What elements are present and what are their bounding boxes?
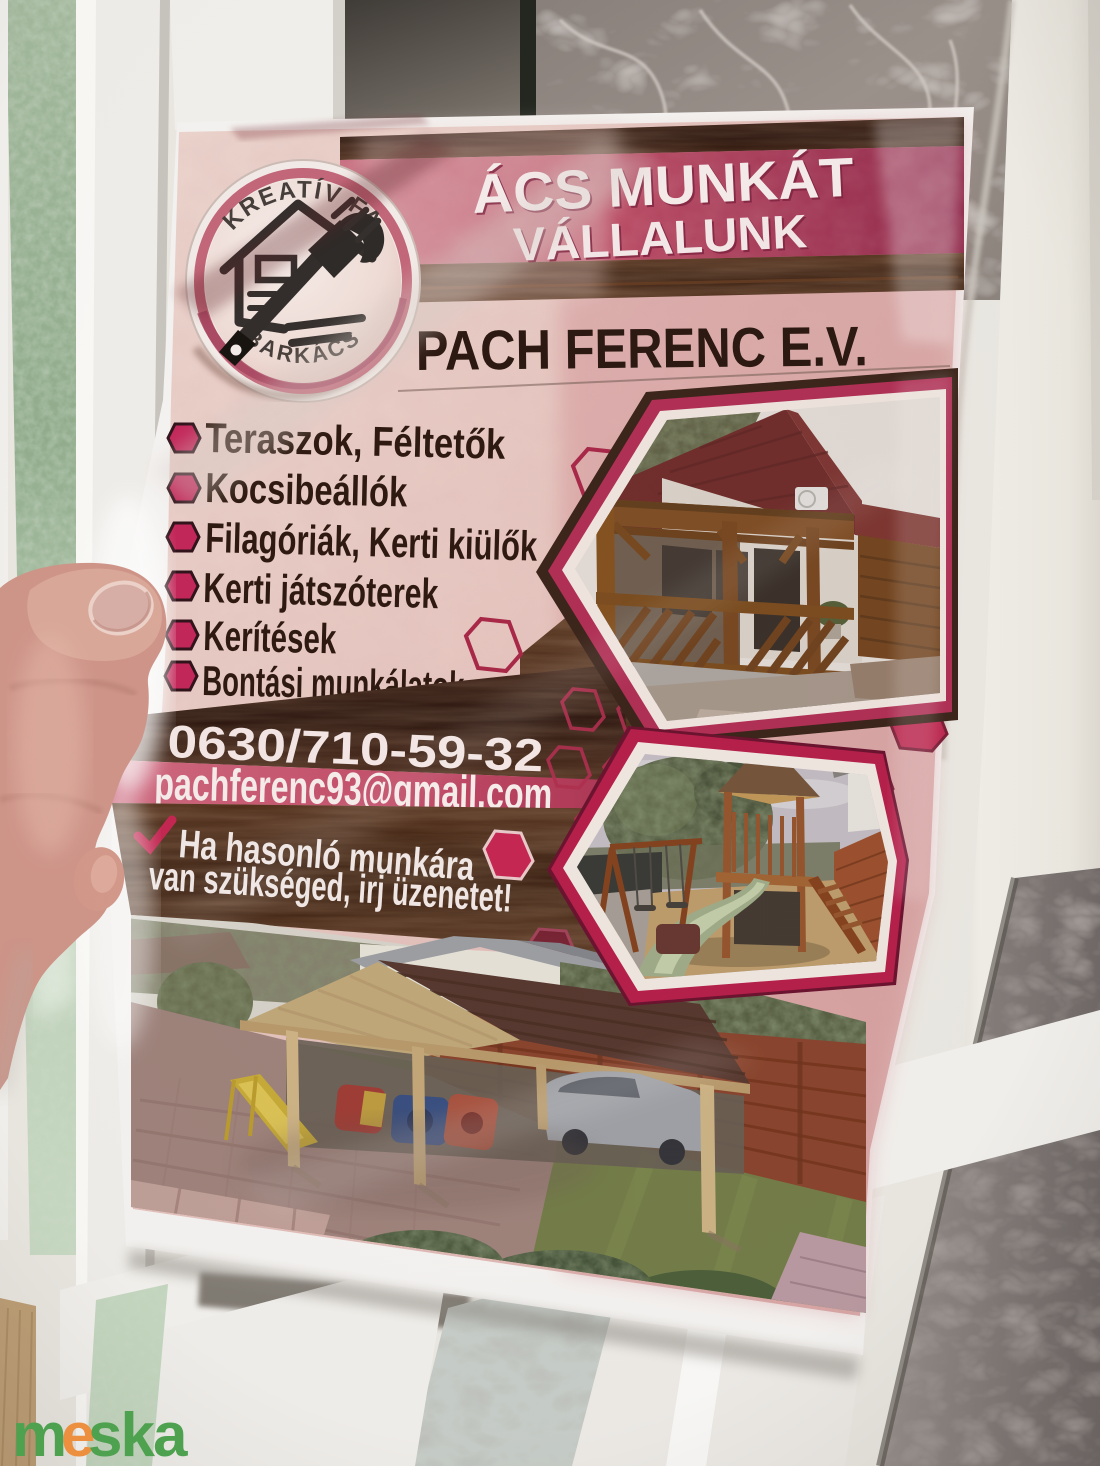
- svg-text:ska: ska: [88, 1401, 188, 1466]
- svg-text:m: m: [12, 1401, 65, 1466]
